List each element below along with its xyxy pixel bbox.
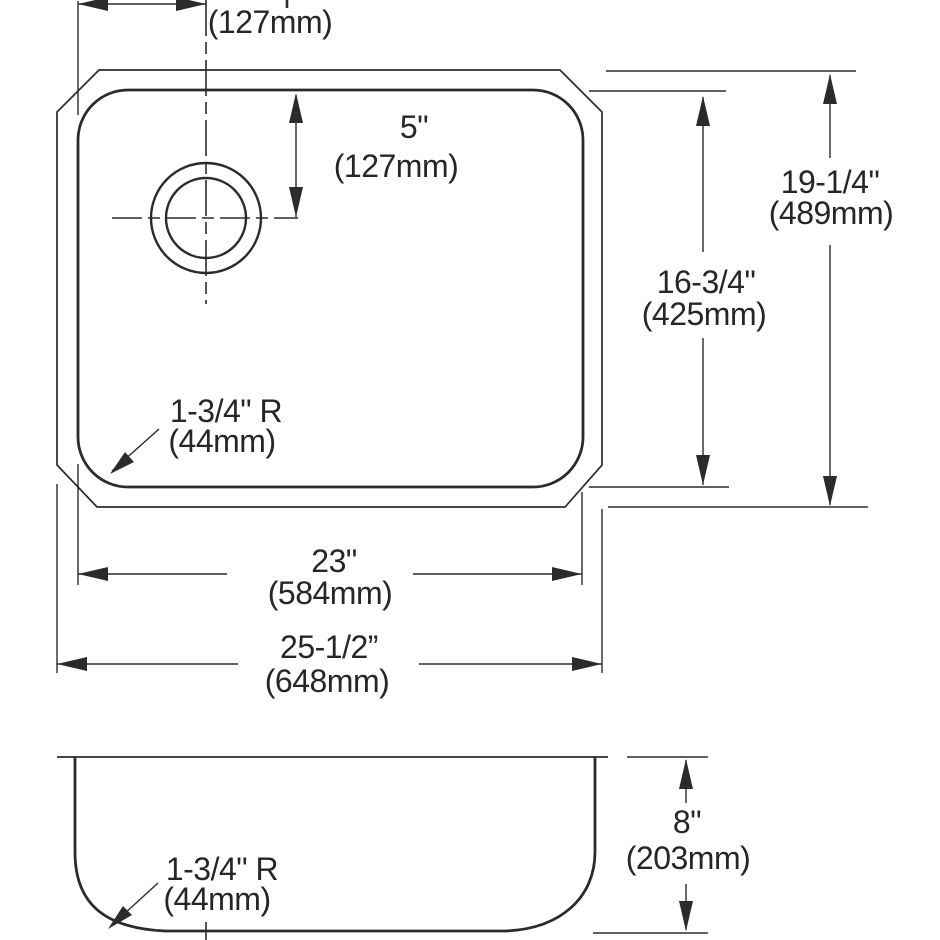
arrow-right [176,0,206,11]
radius-label-mm: (44mm) [168,423,275,459]
section-view [57,757,608,940]
arrow-right [572,657,602,671]
section-bowl-profile [75,757,595,931]
dim-label-mm: (584mm) [268,575,393,611]
section-corner-radius-callout: 1-3/4" R (44mm) [108,851,278,929]
dim-label-in: 5" [400,109,428,145]
plan-corner-radius-callout: 1-3/4" R (44mm) [110,393,282,474]
arrow-up [696,96,710,126]
arrow-left [78,567,108,581]
dim-label-mm: (127mm) [334,148,459,184]
dim-label-mm: (425mm) [642,296,767,332]
dim-label-in: 25-1/2” [280,629,378,665]
dim-inner-height: 16-3/4" (425mm) [589,91,766,487]
radius-label-mm: (44mm) [163,881,270,917]
dim-label-mm: (127mm) [208,4,333,40]
arrow-up [289,93,303,123]
plan-outer-rim-outline [57,70,602,507]
technical-drawing-page: (127mm) 5" (127mm) 16-3/4" (425mm) 19-1/… [0,0,940,940]
dim-label-mm: (203mm) [626,840,751,876]
dim-label-mm: (489mm) [769,195,894,231]
arrow-up [679,759,693,789]
dim-hole-from-left: (127mm) [78,0,332,115]
dim-label-mm: (648mm) [265,663,390,699]
dim-hole-from-top: 5" (127mm) [289,93,458,217]
arrow-down [679,901,693,931]
dim-label-in: 16-3/4" [657,264,756,300]
arrow-up [823,74,837,104]
arrow-down [289,187,303,217]
arrow-down [823,476,837,506]
dim-label-in: 23" [311,543,356,579]
dim-depth: 8" (203mm) [593,757,750,933]
plan-view [57,0,602,507]
arrow-left [57,657,87,671]
arrow-left [78,0,108,11]
sink-dimension-drawing: (127mm) 5" (127mm) 16-3/4" (425mm) 19-1/… [0,0,940,940]
arrow-down [696,455,710,485]
arrow-right [552,567,582,581]
dim-label-in: 8" [673,804,701,840]
plan-bowl-outline [78,90,583,487]
